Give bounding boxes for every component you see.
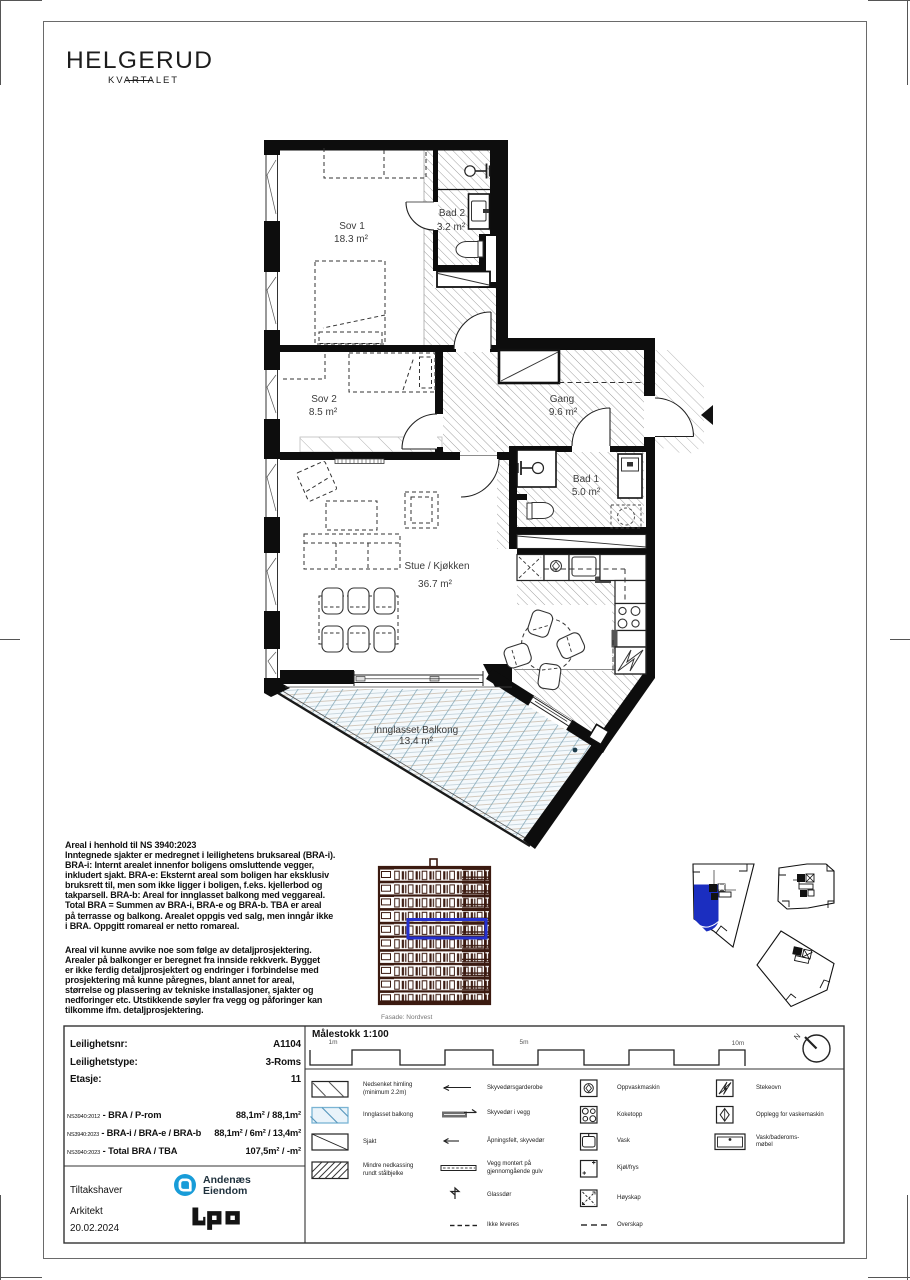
svg-text:3.2 m²: 3.2 m² [437,222,466,233]
svg-text:Sov 1: Sov 1 [339,221,365,232]
svg-text:5m: 5m [519,1039,528,1046]
svg-text:10m: 10m [732,1040,745,1047]
svg-text:Fasade: Nordvest: Fasade: Nordvest [381,1014,432,1021]
svg-text:13.4 m²: 13.4 m² [399,736,434,747]
svg-text:18.3 m²: 18.3 m² [334,234,369,245]
svg-text:Bad 1: Bad 1 [573,474,600,485]
svg-text:1m: 1m [328,1039,337,1046]
svg-text:Stue / Kjøkken: Stue / Kjøkken [404,561,469,572]
svg-text:8.5 m²: 8.5 m² [309,407,338,418]
svg-text:Innglasset Balkong: Innglasset Balkong [374,725,459,736]
svg-text:Eiendom: Eiendom [203,1185,247,1197]
svg-text:9.6 m²: 9.6 m² [549,407,578,418]
svg-text:Bad 2: Bad 2 [439,208,466,219]
svg-text:5.0 m²: 5.0 m² [572,487,601,498]
svg-text:N: N [792,1031,802,1041]
svg-text:Gang: Gang [550,394,574,405]
svg-text:Sov 2: Sov 2 [311,394,337,405]
svg-text:36.7 m²: 36.7 m² [418,579,453,590]
